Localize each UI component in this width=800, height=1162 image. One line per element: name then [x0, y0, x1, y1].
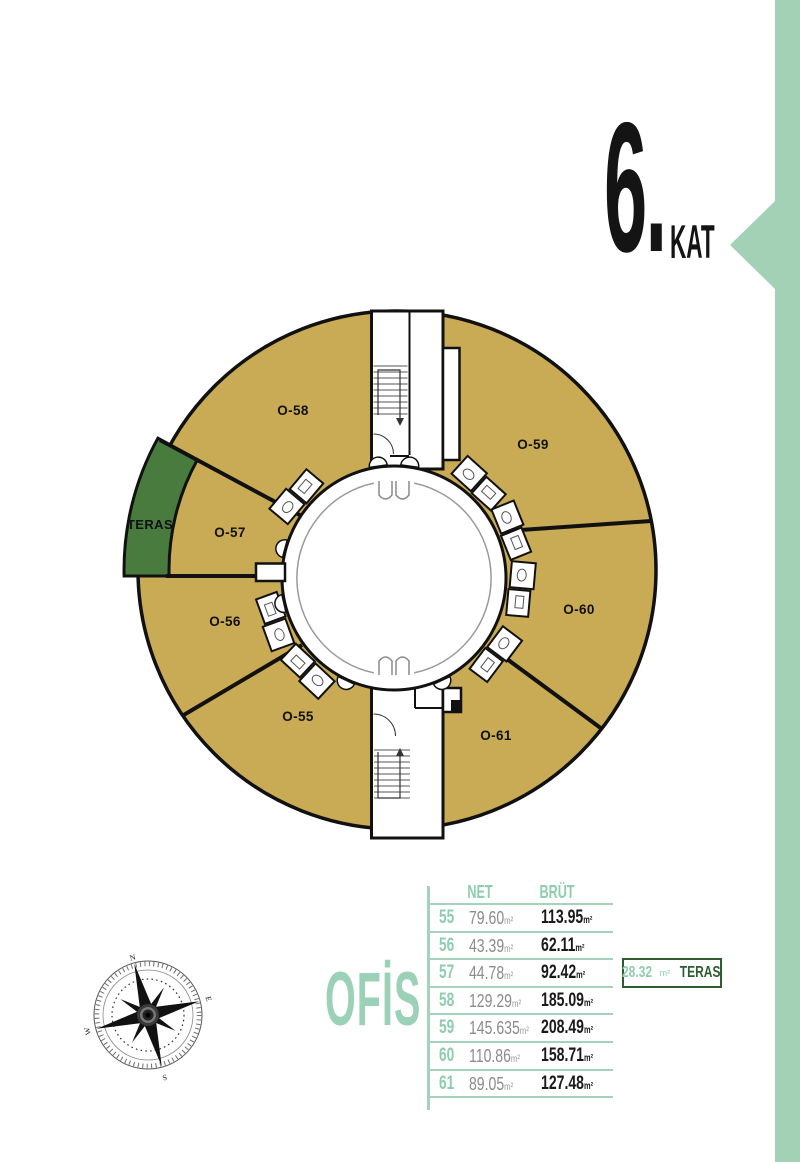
central-core	[282, 466, 506, 690]
teras-area-value: 28.32	[622, 964, 652, 982]
net-value: 89.05m²	[469, 1074, 526, 1095]
row-separator	[428, 1096, 613, 1098]
teras-wedge-label: TERAS	[127, 517, 173, 532]
table-row: 58 129.29m² 185.09m²	[428, 986, 728, 1014]
unit-number: 57	[432, 962, 462, 984]
brut-value: 92.42m²	[541, 962, 601, 984]
unit-number: 56	[432, 935, 462, 957]
teras-note-label: TERAS	[680, 964, 721, 982]
column-header-net: NET	[450, 882, 510, 902]
brut-value: 208.49m²	[541, 1017, 611, 1039]
brut-value: 62.11m²	[541, 935, 600, 957]
floor-number: 6.	[604, 96, 665, 281]
accent-arrow-icon	[730, 200, 776, 290]
core-west-closet	[256, 564, 285, 582]
unit-number: 55	[432, 907, 462, 929]
compass-rose: N E S W	[67, 936, 231, 1099]
floor-plan: O-58 O-59 O-57 O-60 O-56 O-55 O-61 TERAS	[124, 311, 656, 838]
net-value: 110.86m²	[469, 1046, 534, 1067]
compass-w: W	[82, 1026, 93, 1036]
compass-n: N	[129, 952, 137, 962]
unit-label-o55: O-55	[282, 709, 314, 724]
table-row: 56 43.39m² 62.11m²	[428, 931, 728, 959]
unit-number: 58	[432, 990, 462, 1012]
area-table: NET BRÜT 55 79.60m² 113.95m² 56 43.39m² …	[428, 882, 728, 1114]
net-value: 43.39m²	[469, 936, 526, 957]
table-row: 55 79.60m² 113.95m²	[428, 903, 728, 931]
unit-number: 60	[432, 1045, 462, 1067]
table-row: 60 110.86m² 158.71m²	[428, 1041, 728, 1069]
teras-area-unit: m²	[660, 968, 671, 978]
table-row: 59 145.635m² 208.49m²	[428, 1013, 728, 1041]
compass-s: S	[161, 1072, 168, 1082]
legend-title: OFİS	[325, 962, 421, 1038]
floor-label: KAT	[670, 218, 715, 265]
table-row: 61 89.05m² 127.48m²	[428, 1069, 728, 1097]
unit-label-o61: O-61	[480, 728, 512, 743]
unit-label-o56: O-56	[209, 614, 241, 629]
unit-label-o60: O-60	[563, 602, 595, 617]
compass-e: E	[203, 995, 213, 1002]
accent-stripe	[775, 0, 800, 1162]
unit-label-o57: O-57	[214, 525, 246, 540]
net-value: 79.60m²	[469, 908, 526, 929]
brut-value: 158.71m²	[541, 1045, 611, 1067]
net-value: 129.29m²	[469, 991, 536, 1012]
unit-number: 61	[432, 1073, 462, 1095]
unit-number: 59	[432, 1017, 462, 1039]
net-value: 44.78m²	[469, 963, 526, 984]
brut-value: 185.09m²	[541, 990, 611, 1012]
brut-value: 113.95m²	[541, 907, 610, 929]
brut-value: 127.48m²	[541, 1073, 611, 1095]
unit-label-o59: O-59	[517, 437, 549, 452]
net-value: 145.635m²	[469, 1018, 546, 1039]
column-header-brut: BRÜT	[527, 882, 587, 902]
teras-note-box: 28.32m² TERAS	[622, 958, 722, 988]
unit-label-o58: O-58	[277, 403, 309, 418]
